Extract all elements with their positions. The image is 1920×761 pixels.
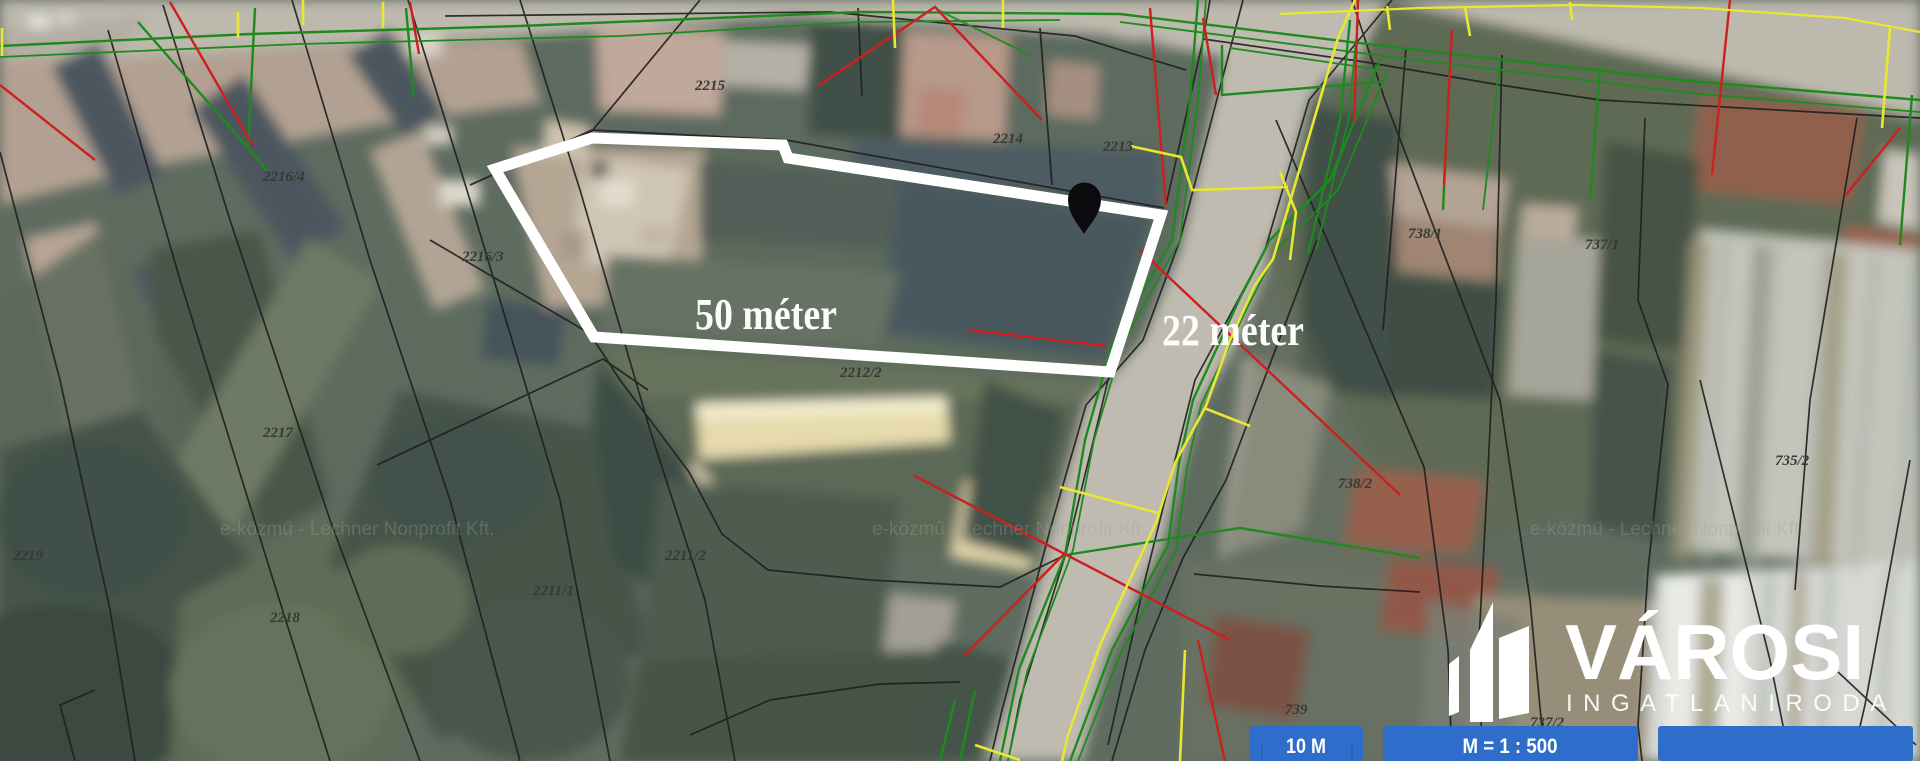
svg-text:2216/4: 2216/4 [262, 169, 305, 185]
svg-text:737/1: 737/1 [1585, 237, 1619, 253]
svg-text:e-közmű - Lechner Nonprofit Kf: e-közmű - Lechner Nonprofit Kft. [872, 519, 1147, 540]
svg-text:50 méter: 50 méter [695, 290, 837, 339]
svg-text:2219: 2219 [12, 548, 44, 564]
svg-text:22 méter: 22 méter [1162, 306, 1304, 355]
svg-text:2217: 2217 [262, 425, 294, 441]
svg-text:2213: 2213 [1102, 139, 1134, 155]
svg-text:e-közmű - Lechner Nonprofit Kf: e-közmű - Lechner Nonprofit Kft. [220, 519, 495, 540]
svg-text:2211/1: 2211/1 [532, 583, 574, 599]
svg-text:2216/3: 2216/3 [461, 249, 504, 265]
svg-text:2211/2: 2211/2 [664, 548, 706, 564]
svg-text:e-közmű - Lechner Nonprofit Kf: e-közmű - Lechner Nonprofit Kft. [1530, 519, 1805, 540]
svg-text:10 M: 10 M [1286, 735, 1326, 758]
svg-text:735/2: 735/2 [1775, 453, 1810, 469]
svg-text:INGATLANIRODA: INGATLANIRODA [1566, 690, 1897, 717]
svg-text:738/2: 738/2 [1338, 476, 1373, 492]
svg-text:M = 1 : 500: M = 1 : 500 [1463, 735, 1558, 758]
svg-text:2218: 2218 [269, 610, 301, 626]
svg-text:739: 739 [1285, 702, 1308, 718]
svg-text:2215: 2215 [694, 78, 726, 94]
svg-text:738/1: 738/1 [1408, 226, 1442, 242]
svg-text:2214: 2214 [992, 131, 1024, 147]
svg-text:2212/2: 2212/2 [839, 365, 882, 381]
svg-text:VÁROSI: VÁROSI [1565, 608, 1864, 696]
